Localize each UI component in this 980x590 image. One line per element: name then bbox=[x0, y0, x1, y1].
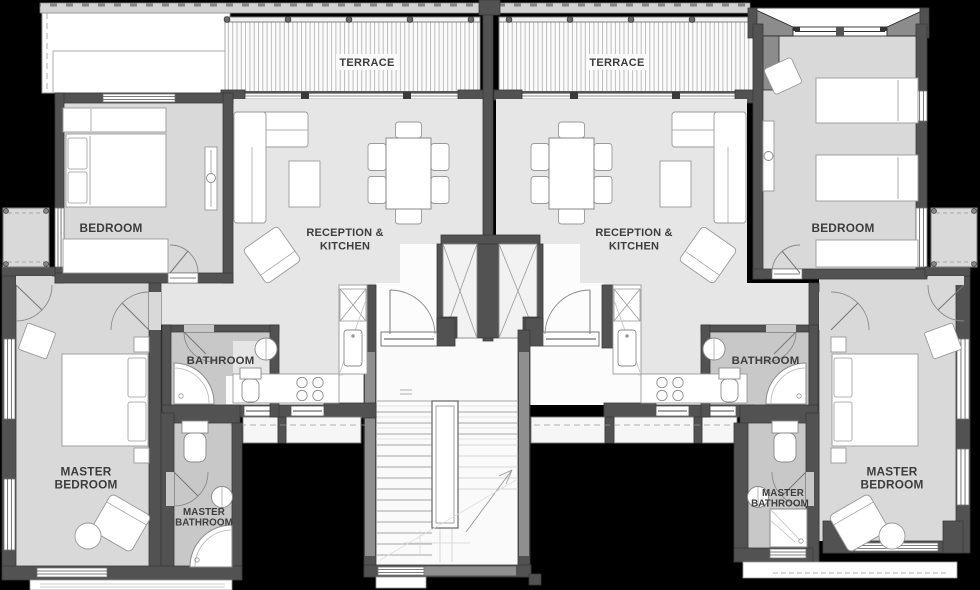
svg-text:MASTER: MASTER bbox=[866, 465, 917, 479]
svg-text:RECEPTION &: RECEPTION & bbox=[595, 227, 672, 239]
svg-text:BEDROOM: BEDROOM bbox=[79, 221, 142, 235]
svg-text:KITCHEN: KITCHEN bbox=[320, 241, 370, 253]
svg-text:KITCHEN: KITCHEN bbox=[609, 241, 659, 253]
svg-text:BATHROOM: BATHROOM bbox=[175, 518, 233, 529]
svg-text:BATHROOM: BATHROOM bbox=[187, 355, 255, 367]
svg-text:BEDROOM: BEDROOM bbox=[811, 221, 874, 235]
svg-text:MASTER: MASTER bbox=[60, 465, 111, 479]
svg-text:MASTER: MASTER bbox=[183, 507, 225, 518]
svg-text:MASTER: MASTER bbox=[762, 488, 804, 499]
svg-text:RECEPTION &: RECEPTION & bbox=[306, 227, 383, 239]
svg-text:BATHROOM: BATHROOM bbox=[751, 499, 809, 510]
svg-text:BEDROOM: BEDROOM bbox=[860, 478, 923, 492]
svg-text:BATHROOM: BATHROOM bbox=[732, 355, 800, 367]
svg-text:BEDROOM: BEDROOM bbox=[54, 478, 117, 492]
svg-text:TERRACE: TERRACE bbox=[339, 57, 394, 69]
svg-text:TERRACE: TERRACE bbox=[589, 57, 644, 69]
